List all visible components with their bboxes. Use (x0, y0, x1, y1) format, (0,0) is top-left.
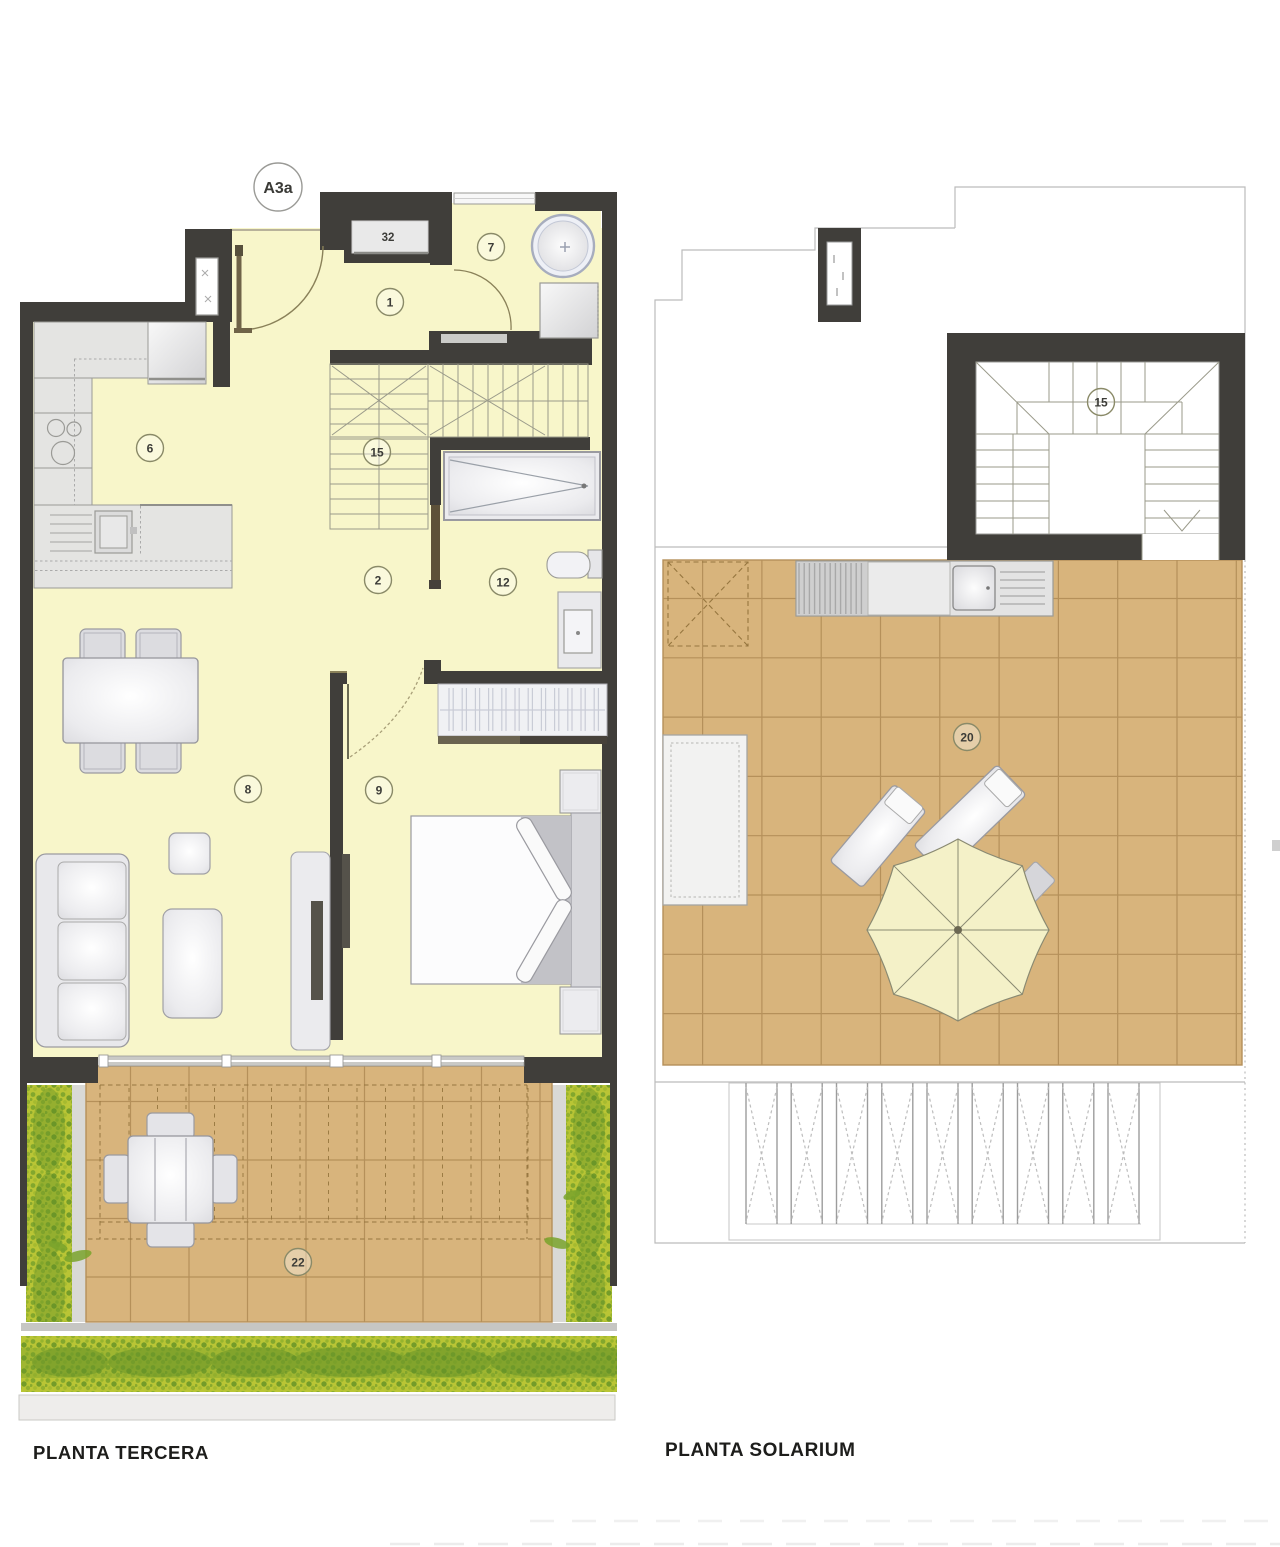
svg-text:15: 15 (370, 445, 384, 459)
svg-text:6: 6 (147, 441, 154, 455)
svg-text:8: 8 (245, 782, 252, 796)
svg-text:15: 15 (1094, 395, 1108, 409)
svg-text:9: 9 (376, 783, 383, 797)
svg-text:PLANTA TERCERA: PLANTA TERCERA (33, 1442, 209, 1463)
svg-text:12: 12 (496, 575, 510, 589)
svg-text:PLANTA SOLARIUM: PLANTA SOLARIUM (665, 1440, 856, 1461)
svg-text:2: 2 (375, 573, 382, 587)
svg-text:32: 32 (382, 232, 395, 244)
svg-text:20: 20 (960, 730, 974, 744)
svg-text:7: 7 (488, 240, 495, 254)
svg-text:1: 1 (387, 295, 394, 309)
svg-text:22: 22 (291, 1255, 305, 1269)
svg-text:A3a: A3a (263, 180, 292, 197)
